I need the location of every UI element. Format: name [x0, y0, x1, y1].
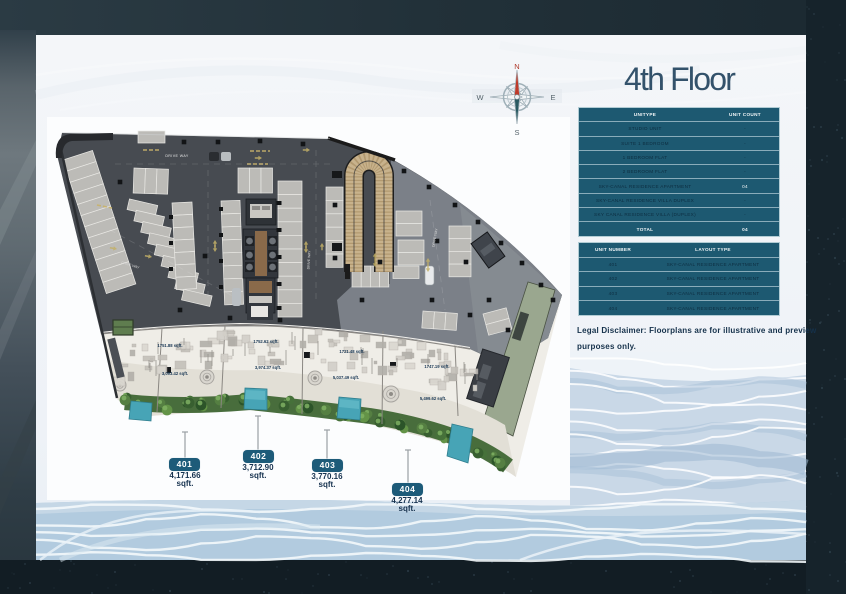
svg-text:3,974.37 sqft.: 3,974.37 sqft. [255, 365, 281, 370]
svg-text:DRIVE WAY: DRIVE WAY [165, 154, 189, 158]
svg-text:5,499.62 sqft.: 5,499.62 sqft. [420, 396, 446, 401]
svg-text:1721.48 sqft.: 1721.48 sqft. [339, 349, 364, 354]
svg-text:5,037.49 sqft.: 5,037.49 sqft. [333, 375, 359, 380]
svg-text:W: W [476, 93, 484, 102]
svg-text:1747.19 sqft.: 1747.19 sqft. [424, 364, 449, 369]
svg-text:3,093.42 sqft.: 3,093.42 sqft. [162, 371, 188, 376]
svg-text:1751.88 sqft.: 1751.88 sqft. [157, 343, 182, 348]
svg-text:S: S [514, 128, 519, 137]
svg-text:N: N [514, 62, 519, 71]
svg-text:1752.62 sqft.: 1752.62 sqft. [253, 339, 278, 344]
svg-text:E: E [550, 93, 555, 102]
